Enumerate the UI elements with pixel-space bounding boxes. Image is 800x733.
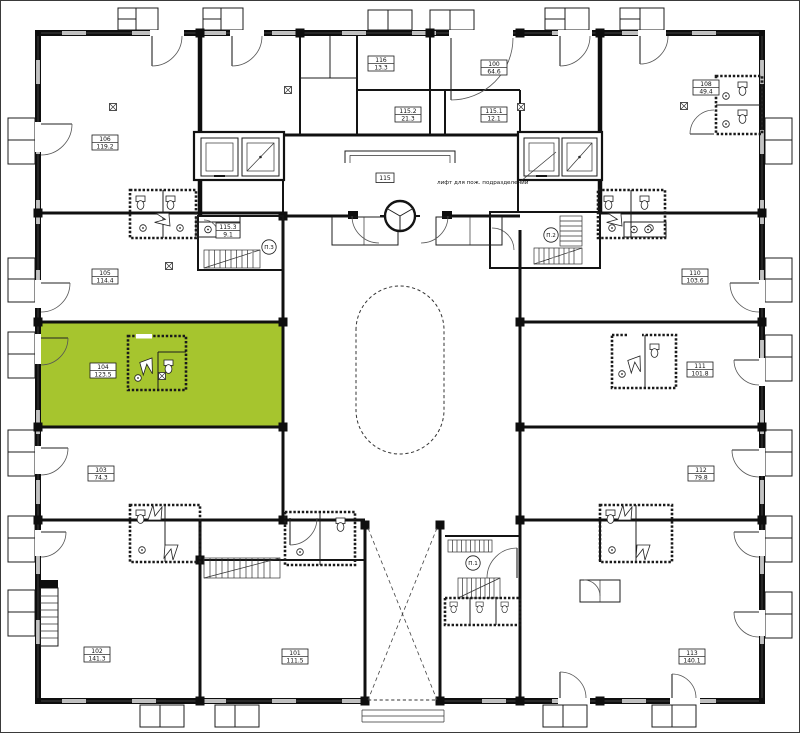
svg-text:116: 116: [375, 57, 387, 64]
svg-text:103: 103: [95, 467, 107, 474]
room-label-116: 11613.3: [368, 56, 394, 72]
svg-text:74.3: 74.3: [94, 475, 108, 482]
svg-text:П.3: П.3: [264, 245, 274, 251]
svg-text:114.4: 114.4: [96, 278, 113, 285]
svg-text:104: 104: [97, 364, 109, 371]
svg-text:100: 100: [488, 61, 500, 68]
svg-text:79.8: 79.8: [694, 475, 708, 482]
svg-text:113: 113: [686, 650, 698, 657]
svg-text:21.3: 21.3: [401, 116, 415, 123]
svg-text:115.2: 115.2: [399, 108, 416, 115]
svg-text:П.1: П.1: [468, 561, 478, 567]
stair-label-p1: П.1: [466, 556, 480, 570]
room-label-115-3: 115.39.1: [216, 223, 240, 239]
svg-text:111: 111: [694, 363, 706, 370]
svg-text:115.3: 115.3: [219, 224, 236, 231]
room-label-112: 11279.8: [688, 466, 714, 482]
svg-text:106: 106: [99, 136, 111, 143]
room-label-115: 115: [376, 173, 394, 183]
room-label-104[interactable]: 104123.5: [90, 363, 116, 379]
svg-text:102: 102: [91, 648, 103, 655]
room-label-101: 101111.5: [282, 649, 308, 665]
svg-text:49.4: 49.4: [699, 89, 713, 96]
svg-text:12.1: 12.1: [487, 116, 501, 123]
room-label-106: 106119.2: [92, 135, 118, 151]
svg-text:101.8: 101.8: [691, 371, 708, 378]
svg-text:112: 112: [695, 467, 707, 474]
svg-text:123.5: 123.5: [94, 372, 111, 379]
svg-text:115.1: 115.1: [485, 108, 502, 115]
svg-text:101: 101: [289, 650, 301, 657]
svg-text:140.1: 140.1: [683, 658, 700, 665]
stair-label-p3: П.3: [262, 240, 276, 254]
floor-plan-svg: 106119.2 105114.4 104123.5 10374.3 10214…: [0, 0, 800, 733]
room-label-108: 10849.4: [693, 80, 719, 96]
svg-text:лифт для пож. подразделений: лифт для пож. подразделений: [437, 179, 529, 186]
stair-label-p2: П.2: [544, 228, 558, 242]
room-label-102: 102141.3: [84, 647, 110, 663]
svg-text:64.6: 64.6: [487, 69, 501, 76]
svg-text:115: 115: [379, 175, 391, 182]
svg-text:119.2: 119.2: [96, 144, 113, 151]
room-label-111: 111101.8: [687, 362, 713, 378]
svg-text:108: 108: [700, 81, 712, 88]
svg-text:103.6: 103.6: [686, 278, 703, 285]
room-label-113: 113140.1: [679, 649, 705, 665]
room-label-105: 105114.4: [92, 269, 118, 285]
room-label-110: 110103.6: [682, 269, 708, 285]
svg-text:13.3: 13.3: [374, 65, 388, 72]
svg-text:111.5: 111.5: [286, 658, 303, 665]
floor-plan-page: 106119.2 105114.4 104123.5 10374.3 10214…: [0, 0, 800, 733]
room-label-100: 10064.6: [481, 60, 507, 76]
svg-text:141.3: 141.3: [88, 656, 105, 663]
svg-text:110: 110: [689, 270, 701, 277]
room-label-103: 10374.3: [88, 466, 114, 482]
room-label-115-1: 115.112.1: [481, 107, 507, 123]
room-label-115-2: 115.221.3: [395, 107, 421, 123]
svg-text:9.1: 9.1: [223, 232, 233, 239]
svg-text:105: 105: [99, 270, 111, 277]
svg-text:П.2: П.2: [546, 233, 556, 239]
